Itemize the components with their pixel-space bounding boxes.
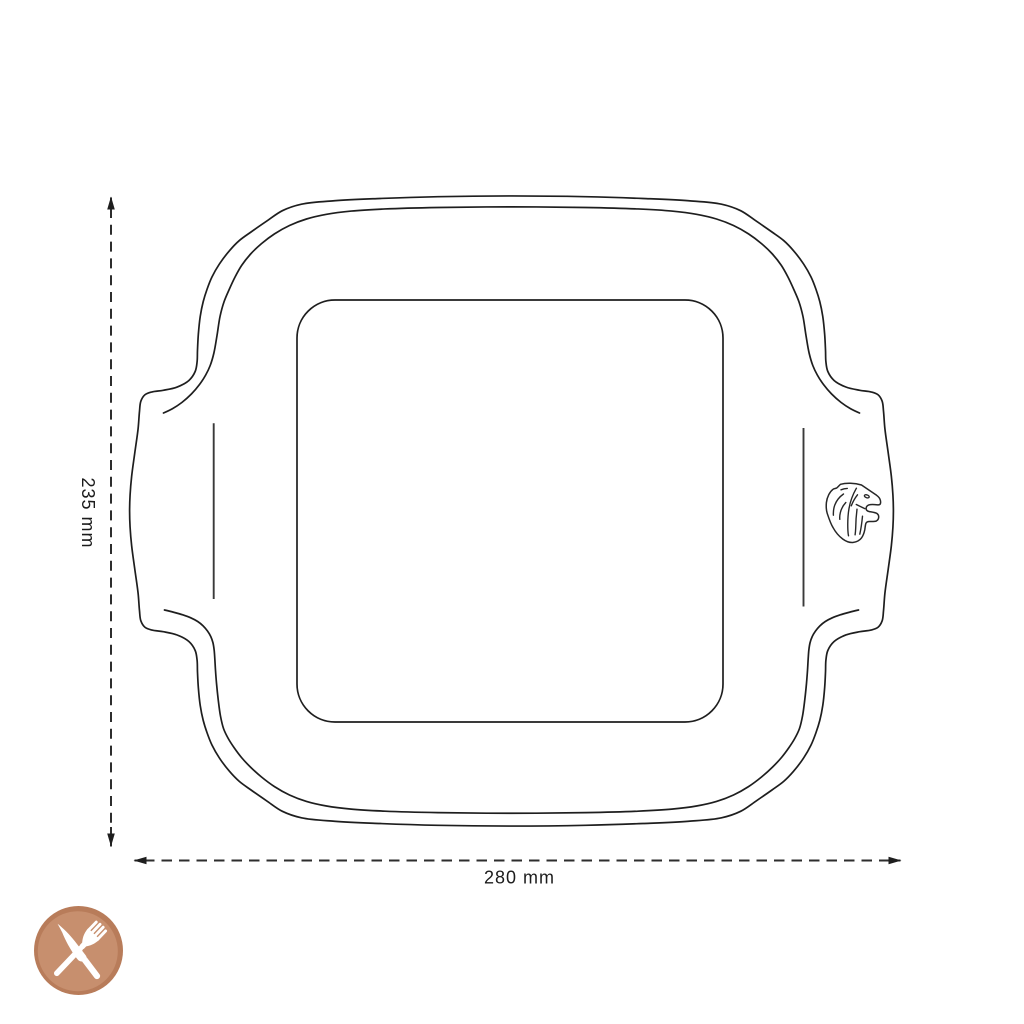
svg-text:280 mm: 280 mm (484, 868, 555, 888)
svg-text:235 mm: 235 mm (78, 477, 98, 548)
